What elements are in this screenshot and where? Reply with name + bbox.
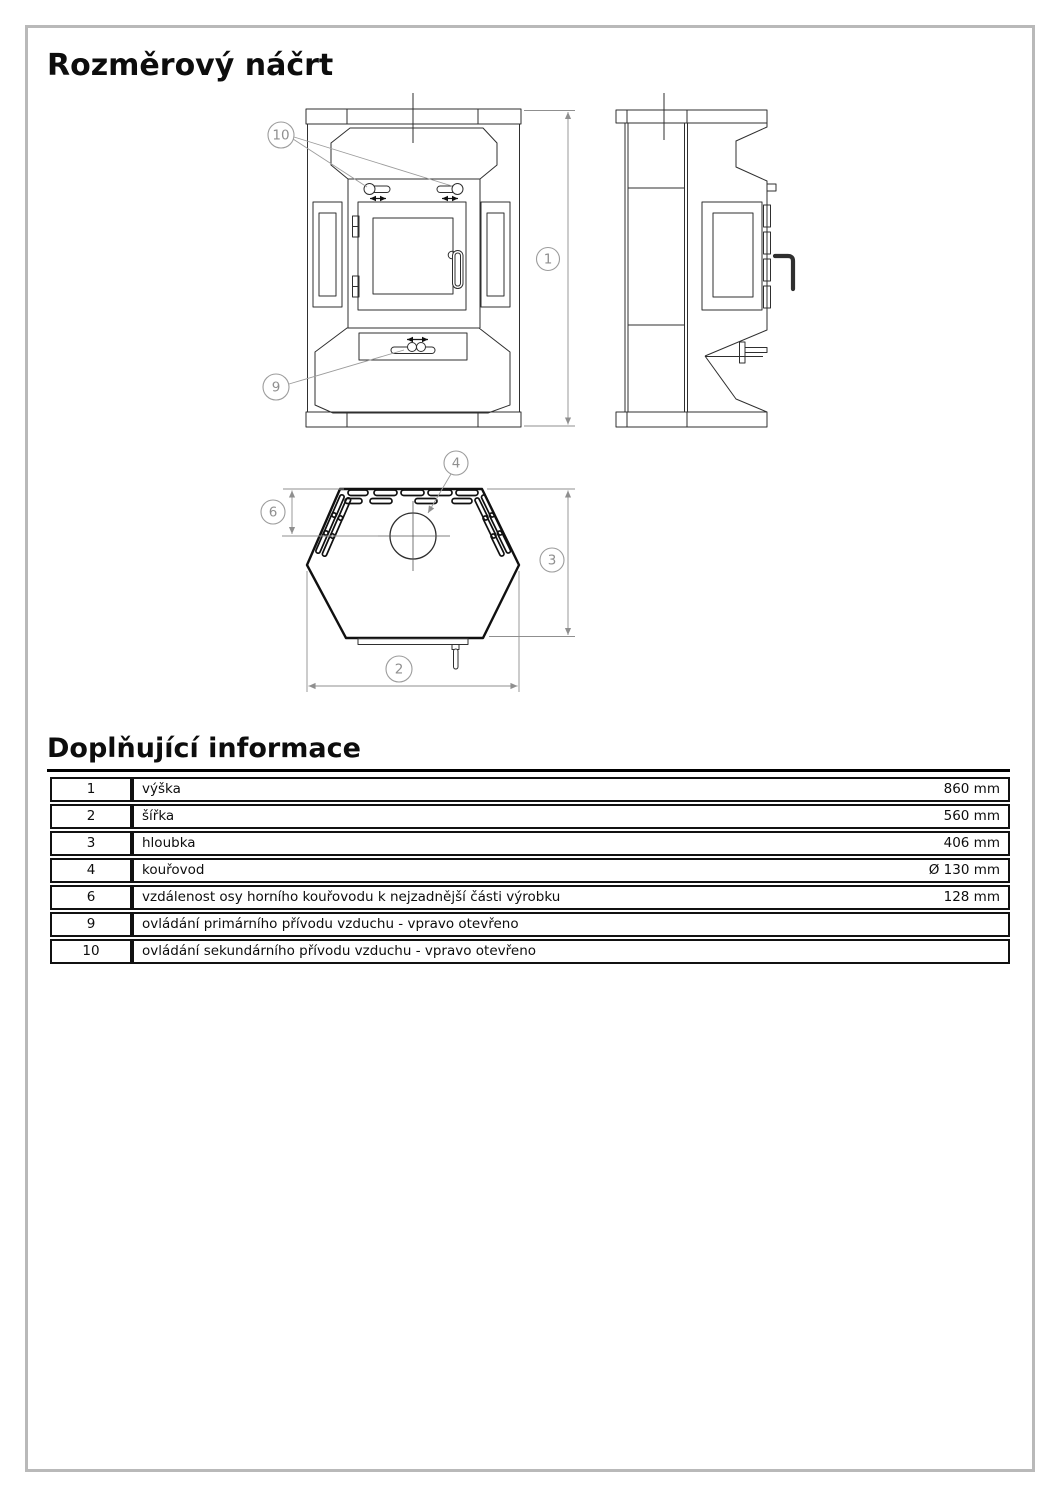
side-panel-left	[313, 202, 342, 307]
front-profile	[705, 123, 767, 356]
door-window-side	[713, 213, 753, 297]
primary-air-lever-side	[740, 342, 746, 363]
side-vent-slots-right	[474, 494, 511, 556]
row-number: 6	[50, 885, 132, 910]
row-label: hloubka	[142, 835, 196, 852]
row-number: 2	[50, 804, 132, 829]
base-plate	[306, 412, 521, 427]
row-value: 128 mm	[934, 889, 1000, 906]
callout-1-label: 1	[544, 252, 553, 268]
door-handle-top	[454, 649, 459, 669]
upper-panel	[331, 128, 497, 179]
callout-3-label: 3	[548, 553, 557, 569]
row-value: Ø 130 mm	[919, 862, 1000, 879]
callout-4-label: 4	[452, 456, 461, 472]
row-number: 1	[50, 777, 132, 802]
callout-10-label: 10	[272, 128, 289, 144]
callout-6-label: 6	[269, 505, 278, 521]
table-row: 3 hloubka 406 mm	[50, 831, 1010, 856]
stove-front-view	[306, 93, 521, 427]
lower-panel	[315, 328, 510, 413]
table-row: 6 vzdálenost osy horního kouřovodu k nej…	[50, 885, 1010, 910]
base-plate	[616, 412, 767, 427]
row-label: ovládání primárního přívodu vzduchu - vp…	[142, 916, 519, 933]
table-row: 9 ovládání primárního přívodu vzduchu - …	[50, 912, 1010, 937]
row-number: 9	[50, 912, 132, 937]
callout-9-label: 9	[272, 380, 281, 396]
door-window	[373, 218, 453, 294]
section-title: Doplňující informace	[47, 733, 1010, 772]
side-panel-right	[481, 202, 510, 307]
row-number: 10	[50, 939, 132, 964]
stove-side-view	[616, 93, 793, 427]
row-label: šířka	[142, 808, 174, 825]
door-handle	[453, 251, 464, 289]
callout-2-label: 2	[395, 662, 404, 678]
row-label: výška	[142, 781, 181, 798]
door-handle-side	[775, 256, 793, 289]
table-row: 4 kouřovod Ø 130 mm	[50, 858, 1010, 883]
row-value: 560 mm	[934, 808, 1000, 825]
table-row: 1 výška 860 mm	[50, 777, 1010, 802]
row-label: kouřovod	[142, 862, 204, 879]
info-table: 1 výška 860 mm 2 šířka 560 mm 3 hloubka …	[50, 775, 1010, 966]
table-row: 2 šířka 560 mm	[50, 804, 1010, 829]
top-plate	[616, 110, 767, 123]
rear-vent-slots	[345, 490, 478, 504]
row-label: vzdálenost osy horního kouřovodu k nejza…	[142, 889, 560, 906]
bottom-skirt	[705, 356, 767, 412]
row-value: 406 mm	[934, 835, 1000, 852]
row-number: 3	[50, 831, 132, 856]
door-front-edge	[358, 639, 468, 645]
row-number: 4	[50, 858, 132, 883]
stove-top-view	[307, 489, 519, 669]
row-label: ovládání sekundárního přívodu vzduchu - …	[142, 943, 536, 960]
dimension-lines	[282, 111, 575, 693]
row-value: 860 mm	[934, 781, 1000, 798]
dimensional-drawing: 10 1 9 4 6 3 2	[0, 0, 1060, 730]
table-row: 10 ovládání sekundárního přívodu vzduchu…	[50, 939, 1010, 964]
